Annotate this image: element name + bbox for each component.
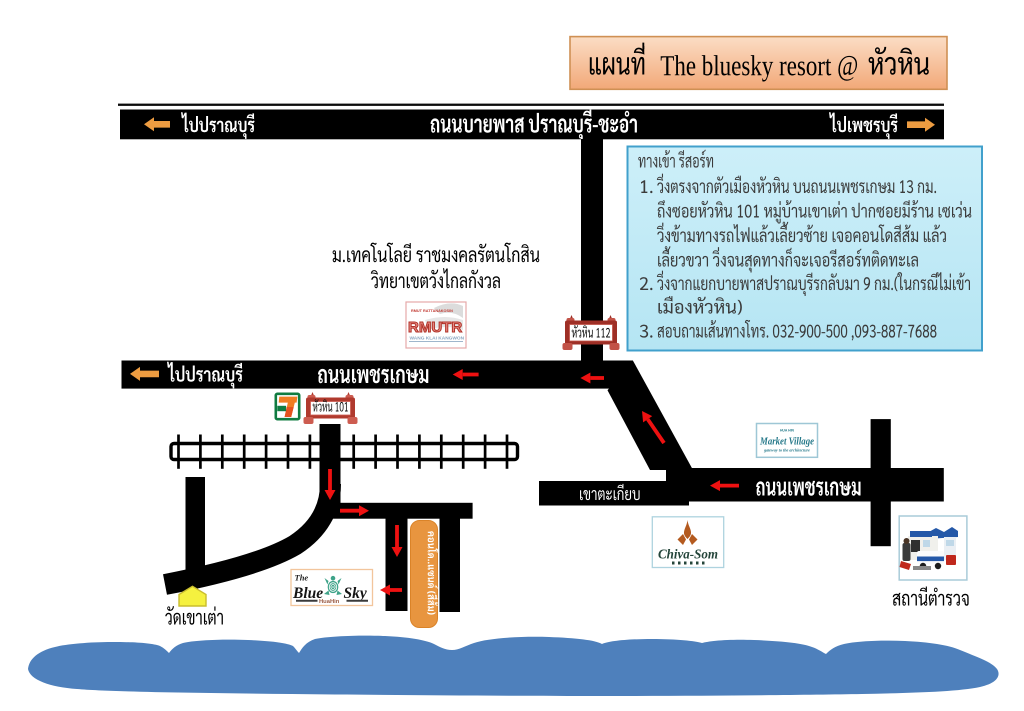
svg-text:The: The [295, 573, 309, 583]
svg-text:HUA HIN: HUA HIN [780, 429, 795, 433]
svg-text:Market Village: Market Village [759, 437, 814, 448]
svg-text:Sky: Sky [344, 585, 367, 602]
svg-text:WANG KLAI KANGWON: WANG KLAI KANGWON [410, 336, 465, 342]
svg-text:Chiva-Som: Chiva-Som [658, 548, 718, 563]
svg-text:RMUTR: RMUTR [408, 319, 462, 336]
svg-text:gateway to the architecture: gateway to the architecture [763, 448, 810, 453]
svg-text:RMUT RATTANAKOSIN: RMUT RATTANAKOSIN [411, 309, 453, 313]
svg-text:HuaHin: HuaHin [319, 599, 340, 605]
